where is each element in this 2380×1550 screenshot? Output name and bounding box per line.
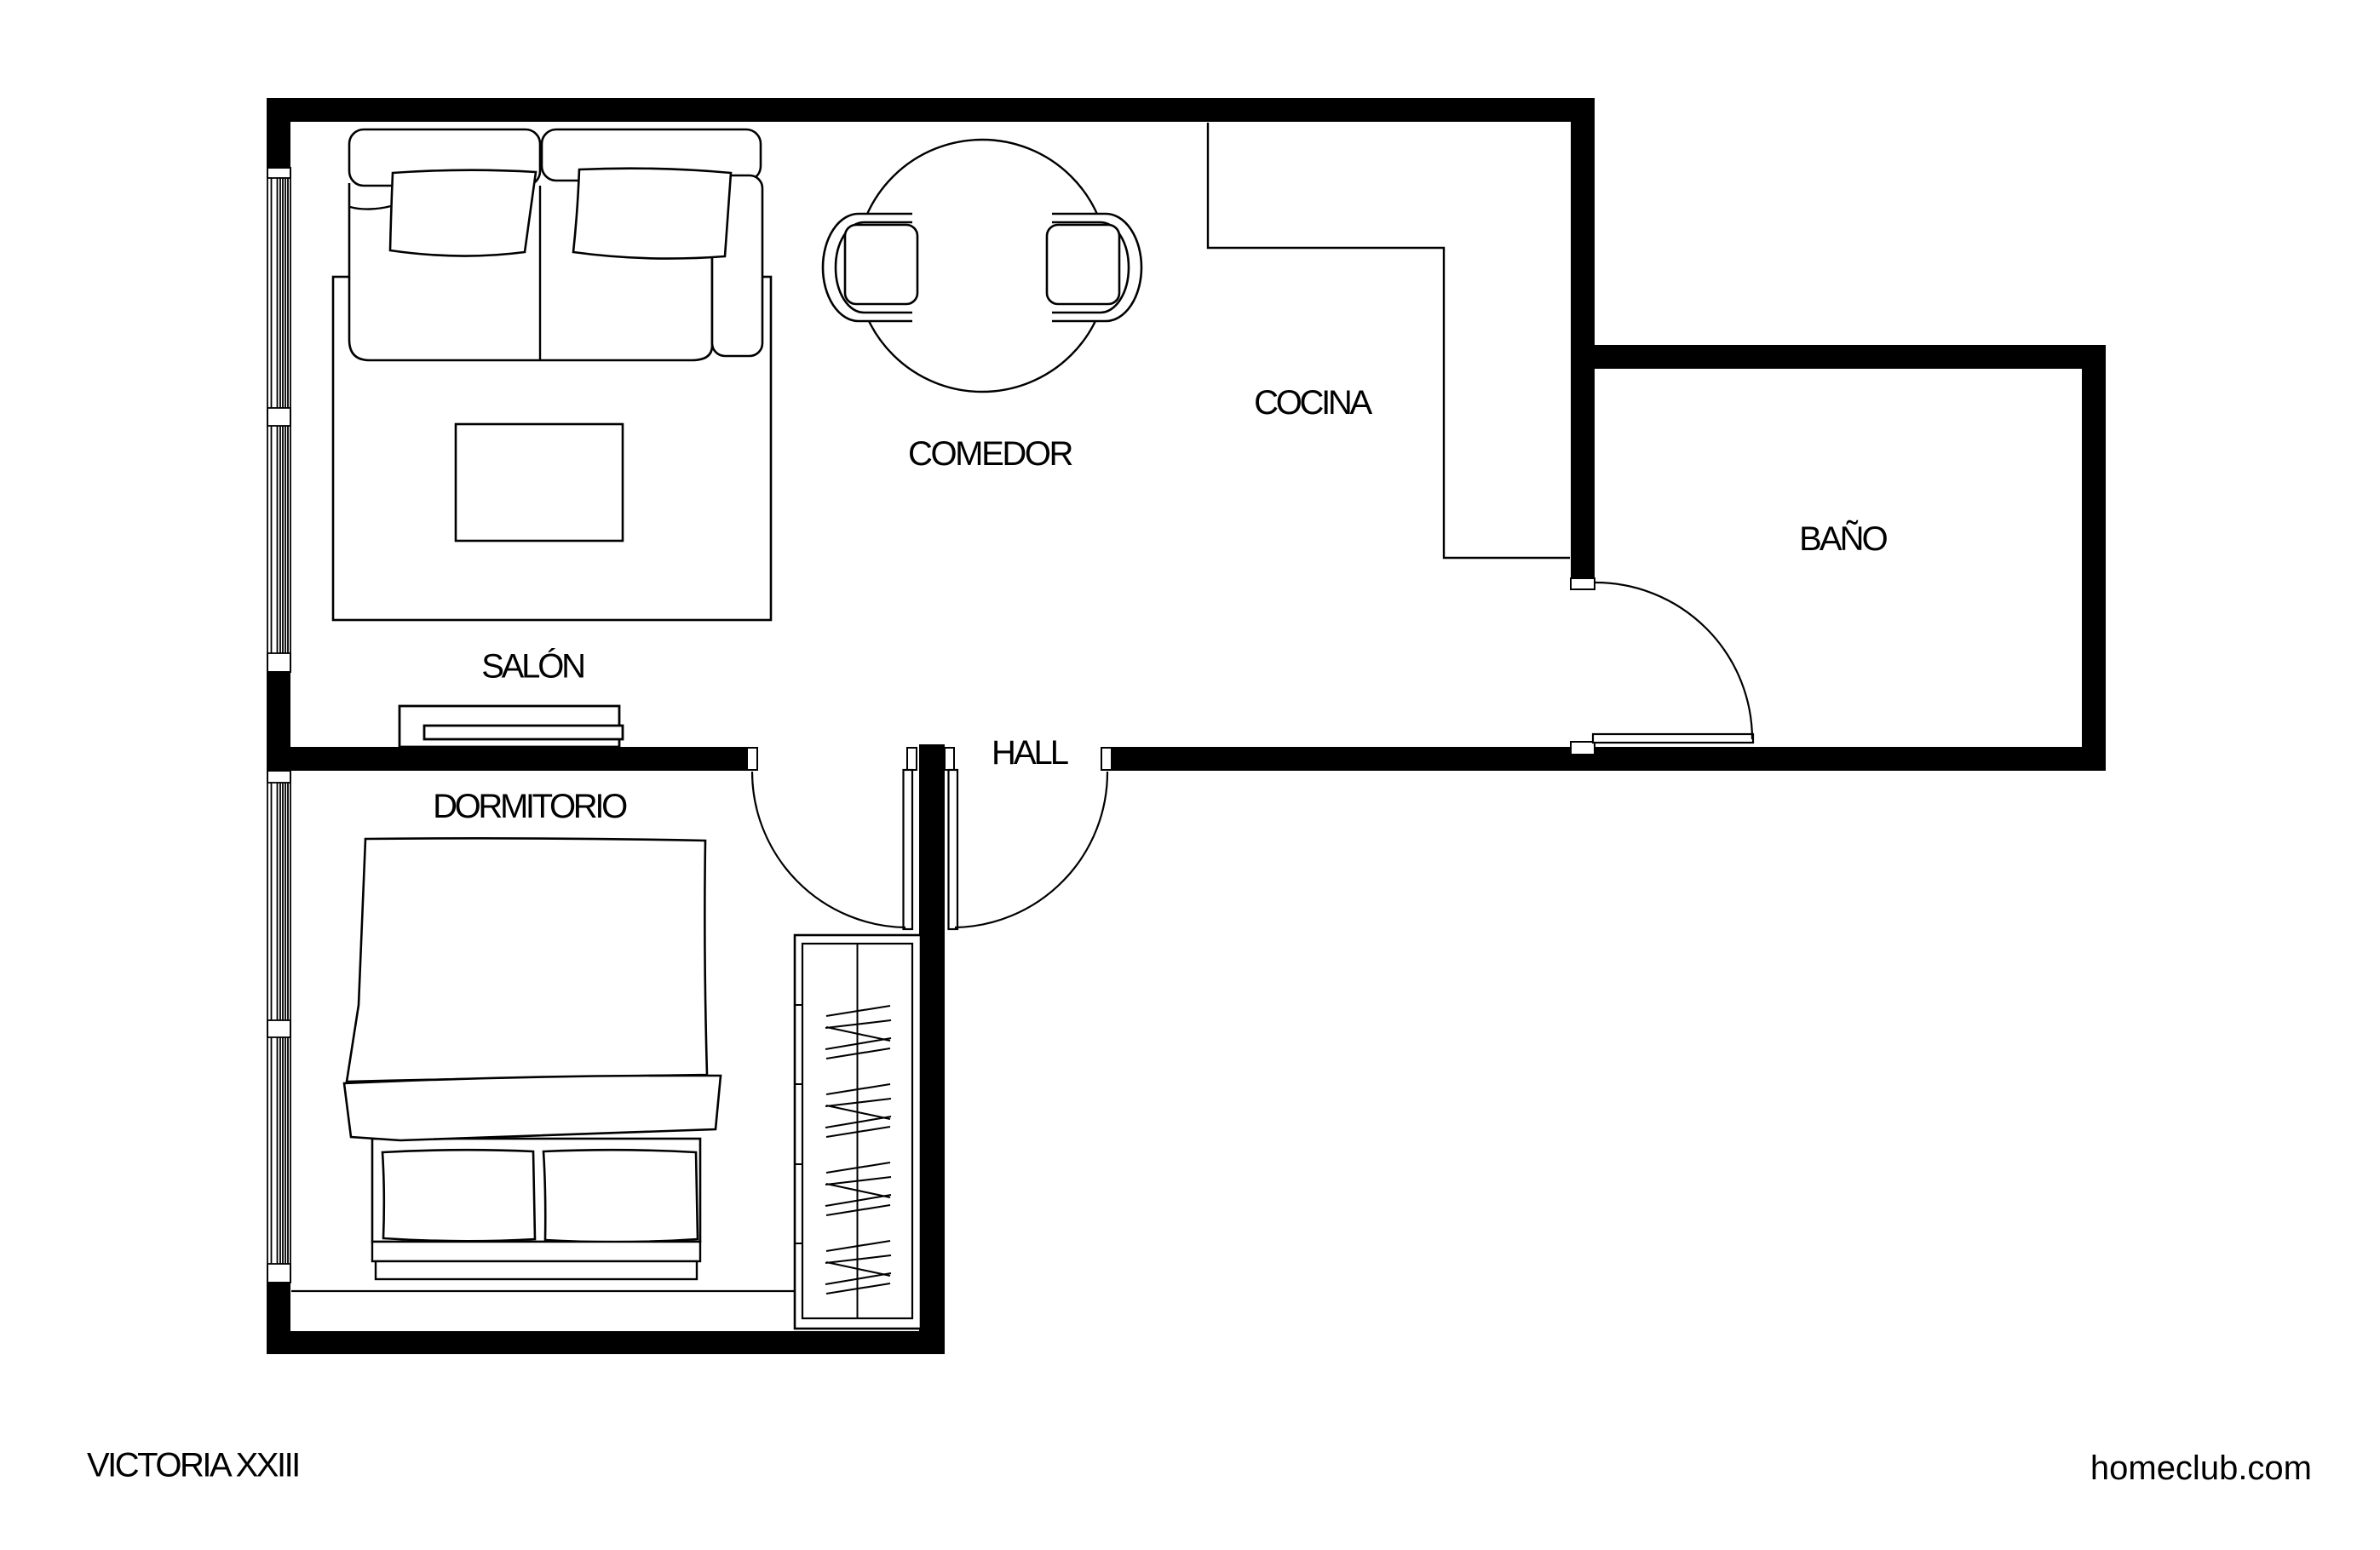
svg-text:COMEDOR: COMEDOR — [908, 435, 1073, 473]
svg-text:BAÑO: BAÑO — [1799, 520, 1888, 558]
svg-text:VICTORIA XXIII: VICTORIA XXIII — [87, 1447, 299, 1484]
svg-text:SALÓN: SALÓN — [481, 647, 584, 686]
svg-text:HALL: HALL — [992, 734, 1068, 772]
svg-text:COCINA: COCINA — [1254, 384, 1372, 422]
svg-text:homeclub.com: homeclub.com — [2090, 1450, 2312, 1487]
svg-text:DORMITORIO: DORMITORIO — [433, 788, 627, 825]
